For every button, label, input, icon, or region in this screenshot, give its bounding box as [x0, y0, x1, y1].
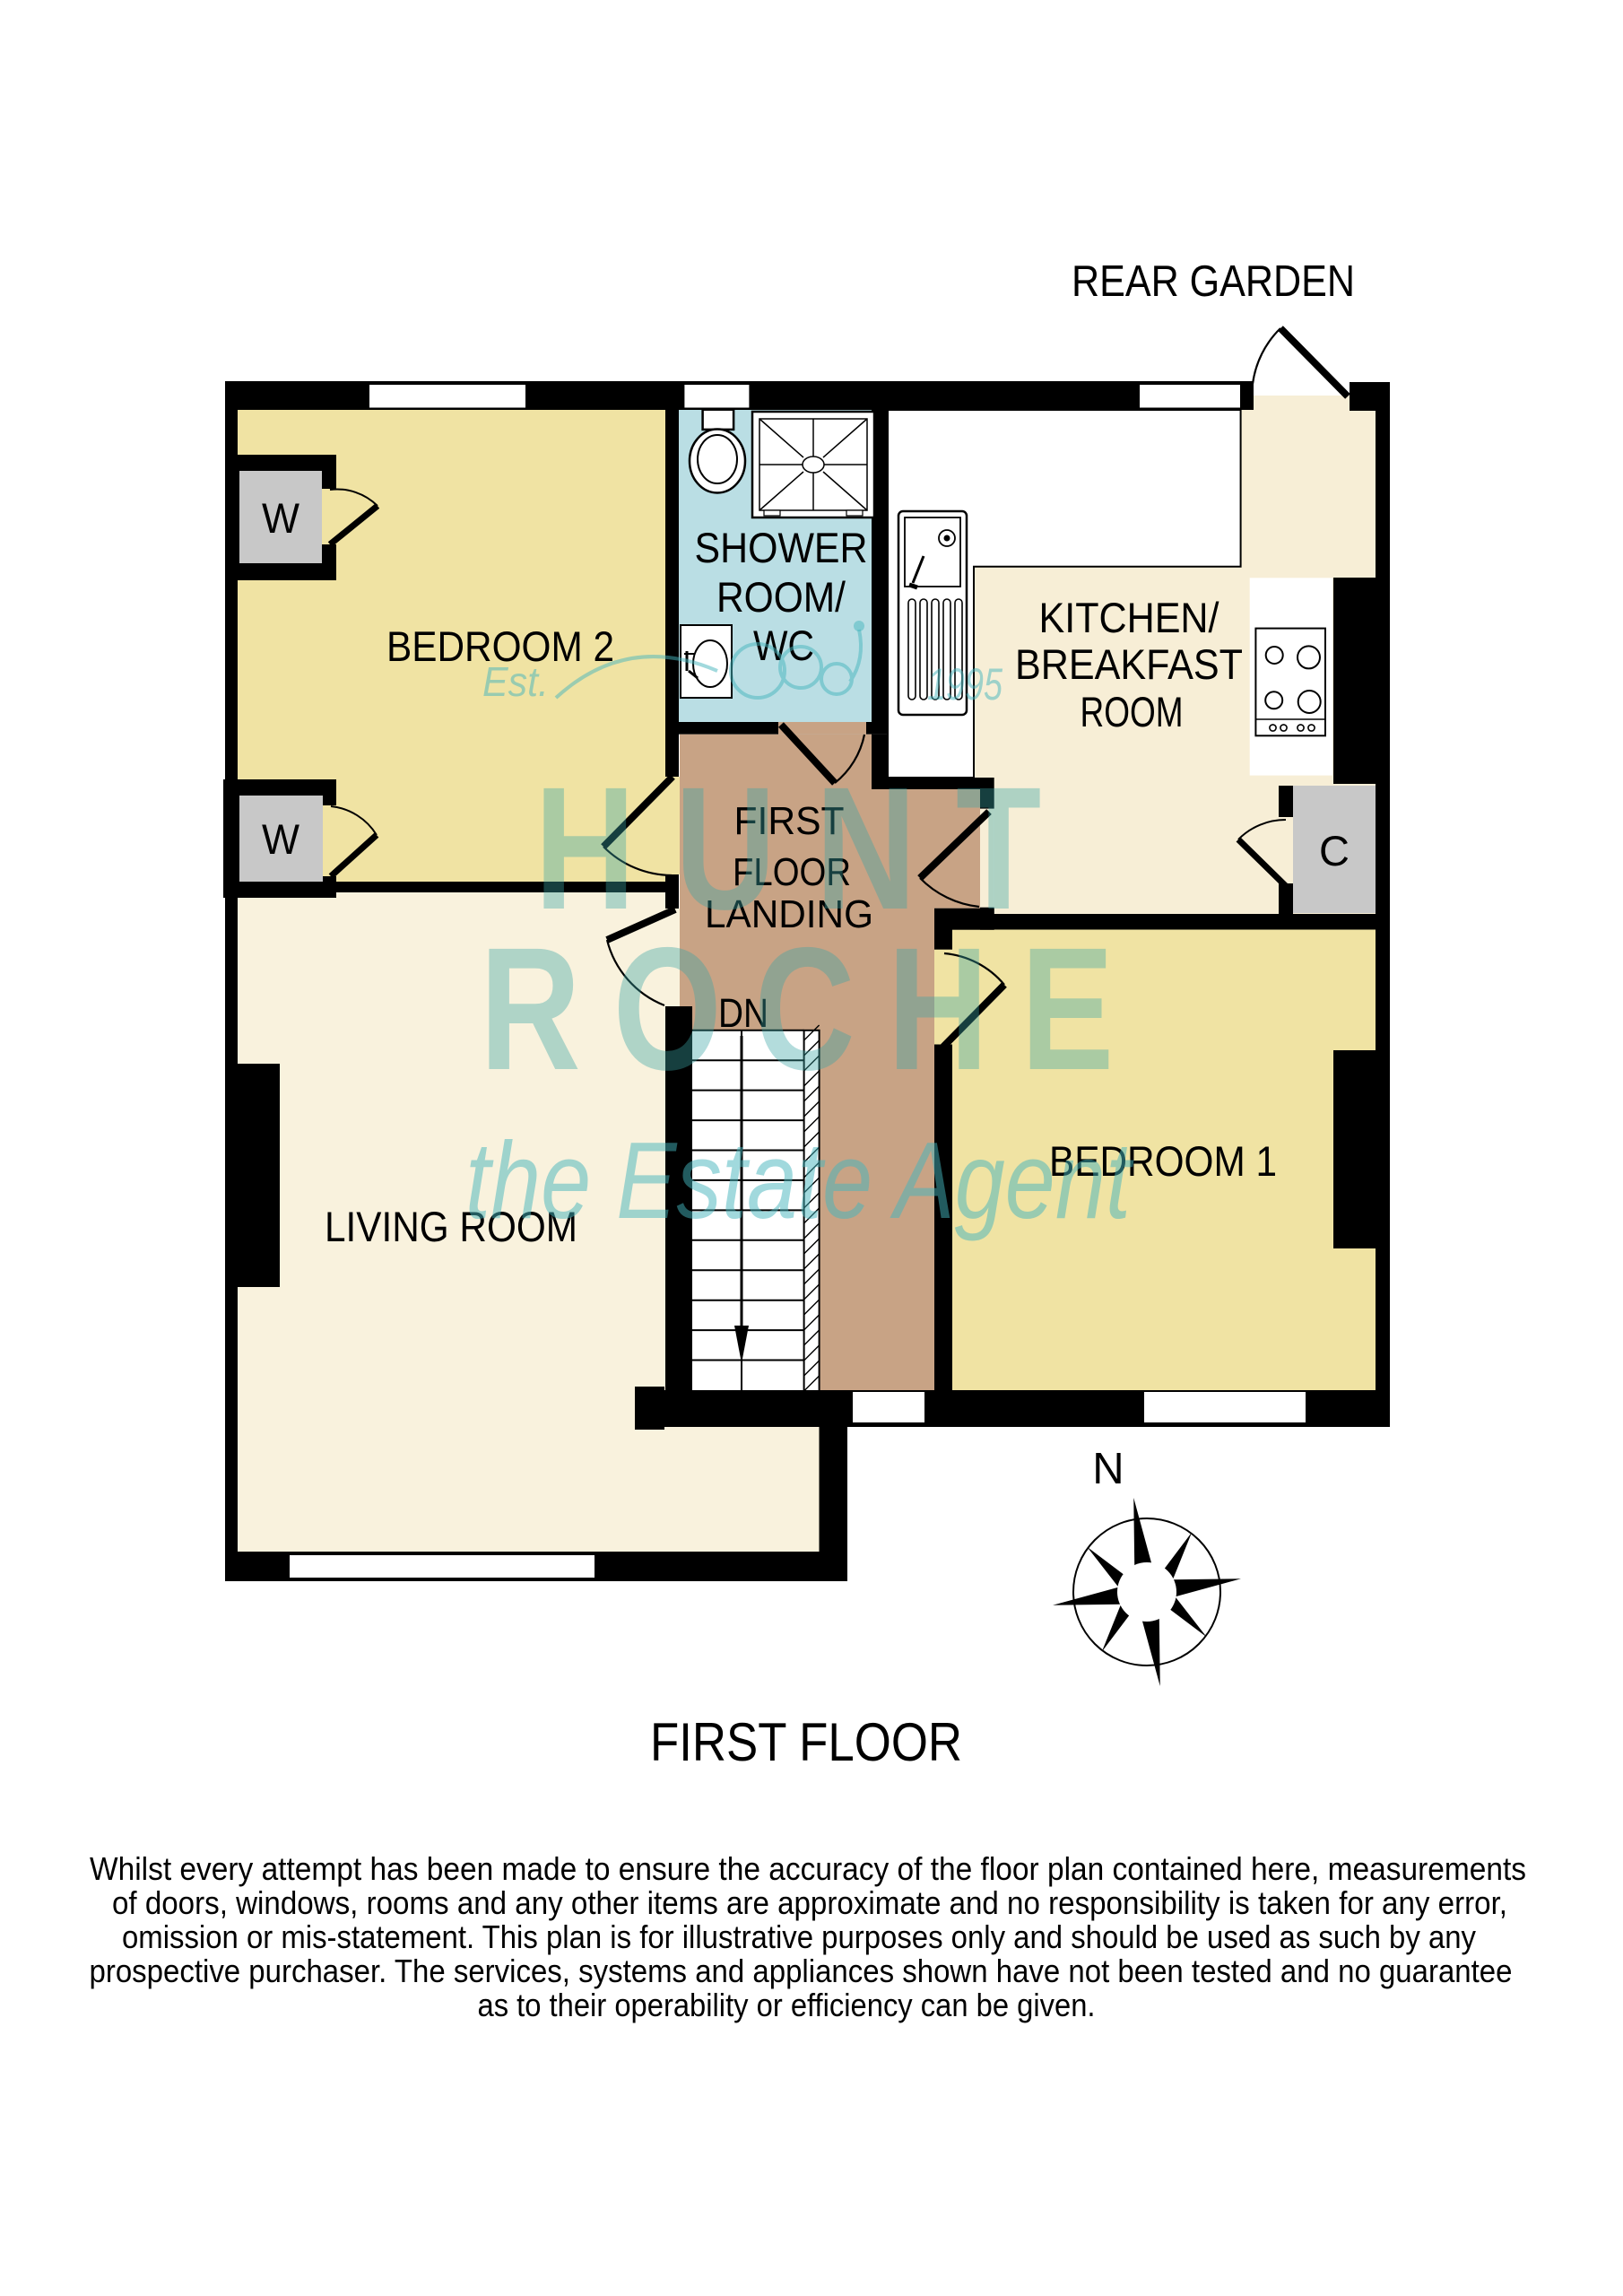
svg-text:ROOM/: ROOM/	[716, 573, 846, 621]
svg-text:1995: 1995	[927, 659, 1002, 709]
svg-text:N: N	[1092, 1445, 1124, 1493]
svg-text:as to their operability or eff: as to their operability or efficiency ca…	[478, 1987, 1096, 2023]
svg-text:ROOM: ROOM	[1081, 688, 1184, 735]
svg-text:REAR GARDEN: REAR GARDEN	[1072, 257, 1355, 306]
svg-text:Est.: Est.	[482, 658, 549, 705]
svg-text:of doors, windows, rooms and a: of doors, windows, rooms and any other i…	[112, 1884, 1507, 1921]
svg-text:KITCHEN/: KITCHEN/	[1039, 594, 1220, 641]
svg-text:prospective purchaser. The ser: prospective purchaser. The services, sys…	[90, 1952, 1513, 1989]
svg-text:the Estate Agent: the Estate Agent	[465, 1119, 1134, 1241]
svg-text:FIRST FLOOR: FIRST FLOOR	[650, 1712, 962, 1772]
svg-text:W: W	[262, 815, 300, 863]
svg-text:BREAKFAST: BREAKFAST	[1015, 640, 1243, 688]
svg-text:W: W	[262, 494, 300, 542]
svg-text:omission or mis-statement. Thi: omission or mis-statement. This plan is …	[122, 1918, 1476, 1955]
svg-text:ROCHE: ROCHE	[480, 911, 1146, 1107]
svg-text:SHOWER: SHOWER	[695, 524, 868, 571]
svg-text:Whilst every attempt has been: Whilst every attempt has been made to en…	[90, 1850, 1526, 1887]
svg-text:C: C	[1319, 827, 1350, 874]
